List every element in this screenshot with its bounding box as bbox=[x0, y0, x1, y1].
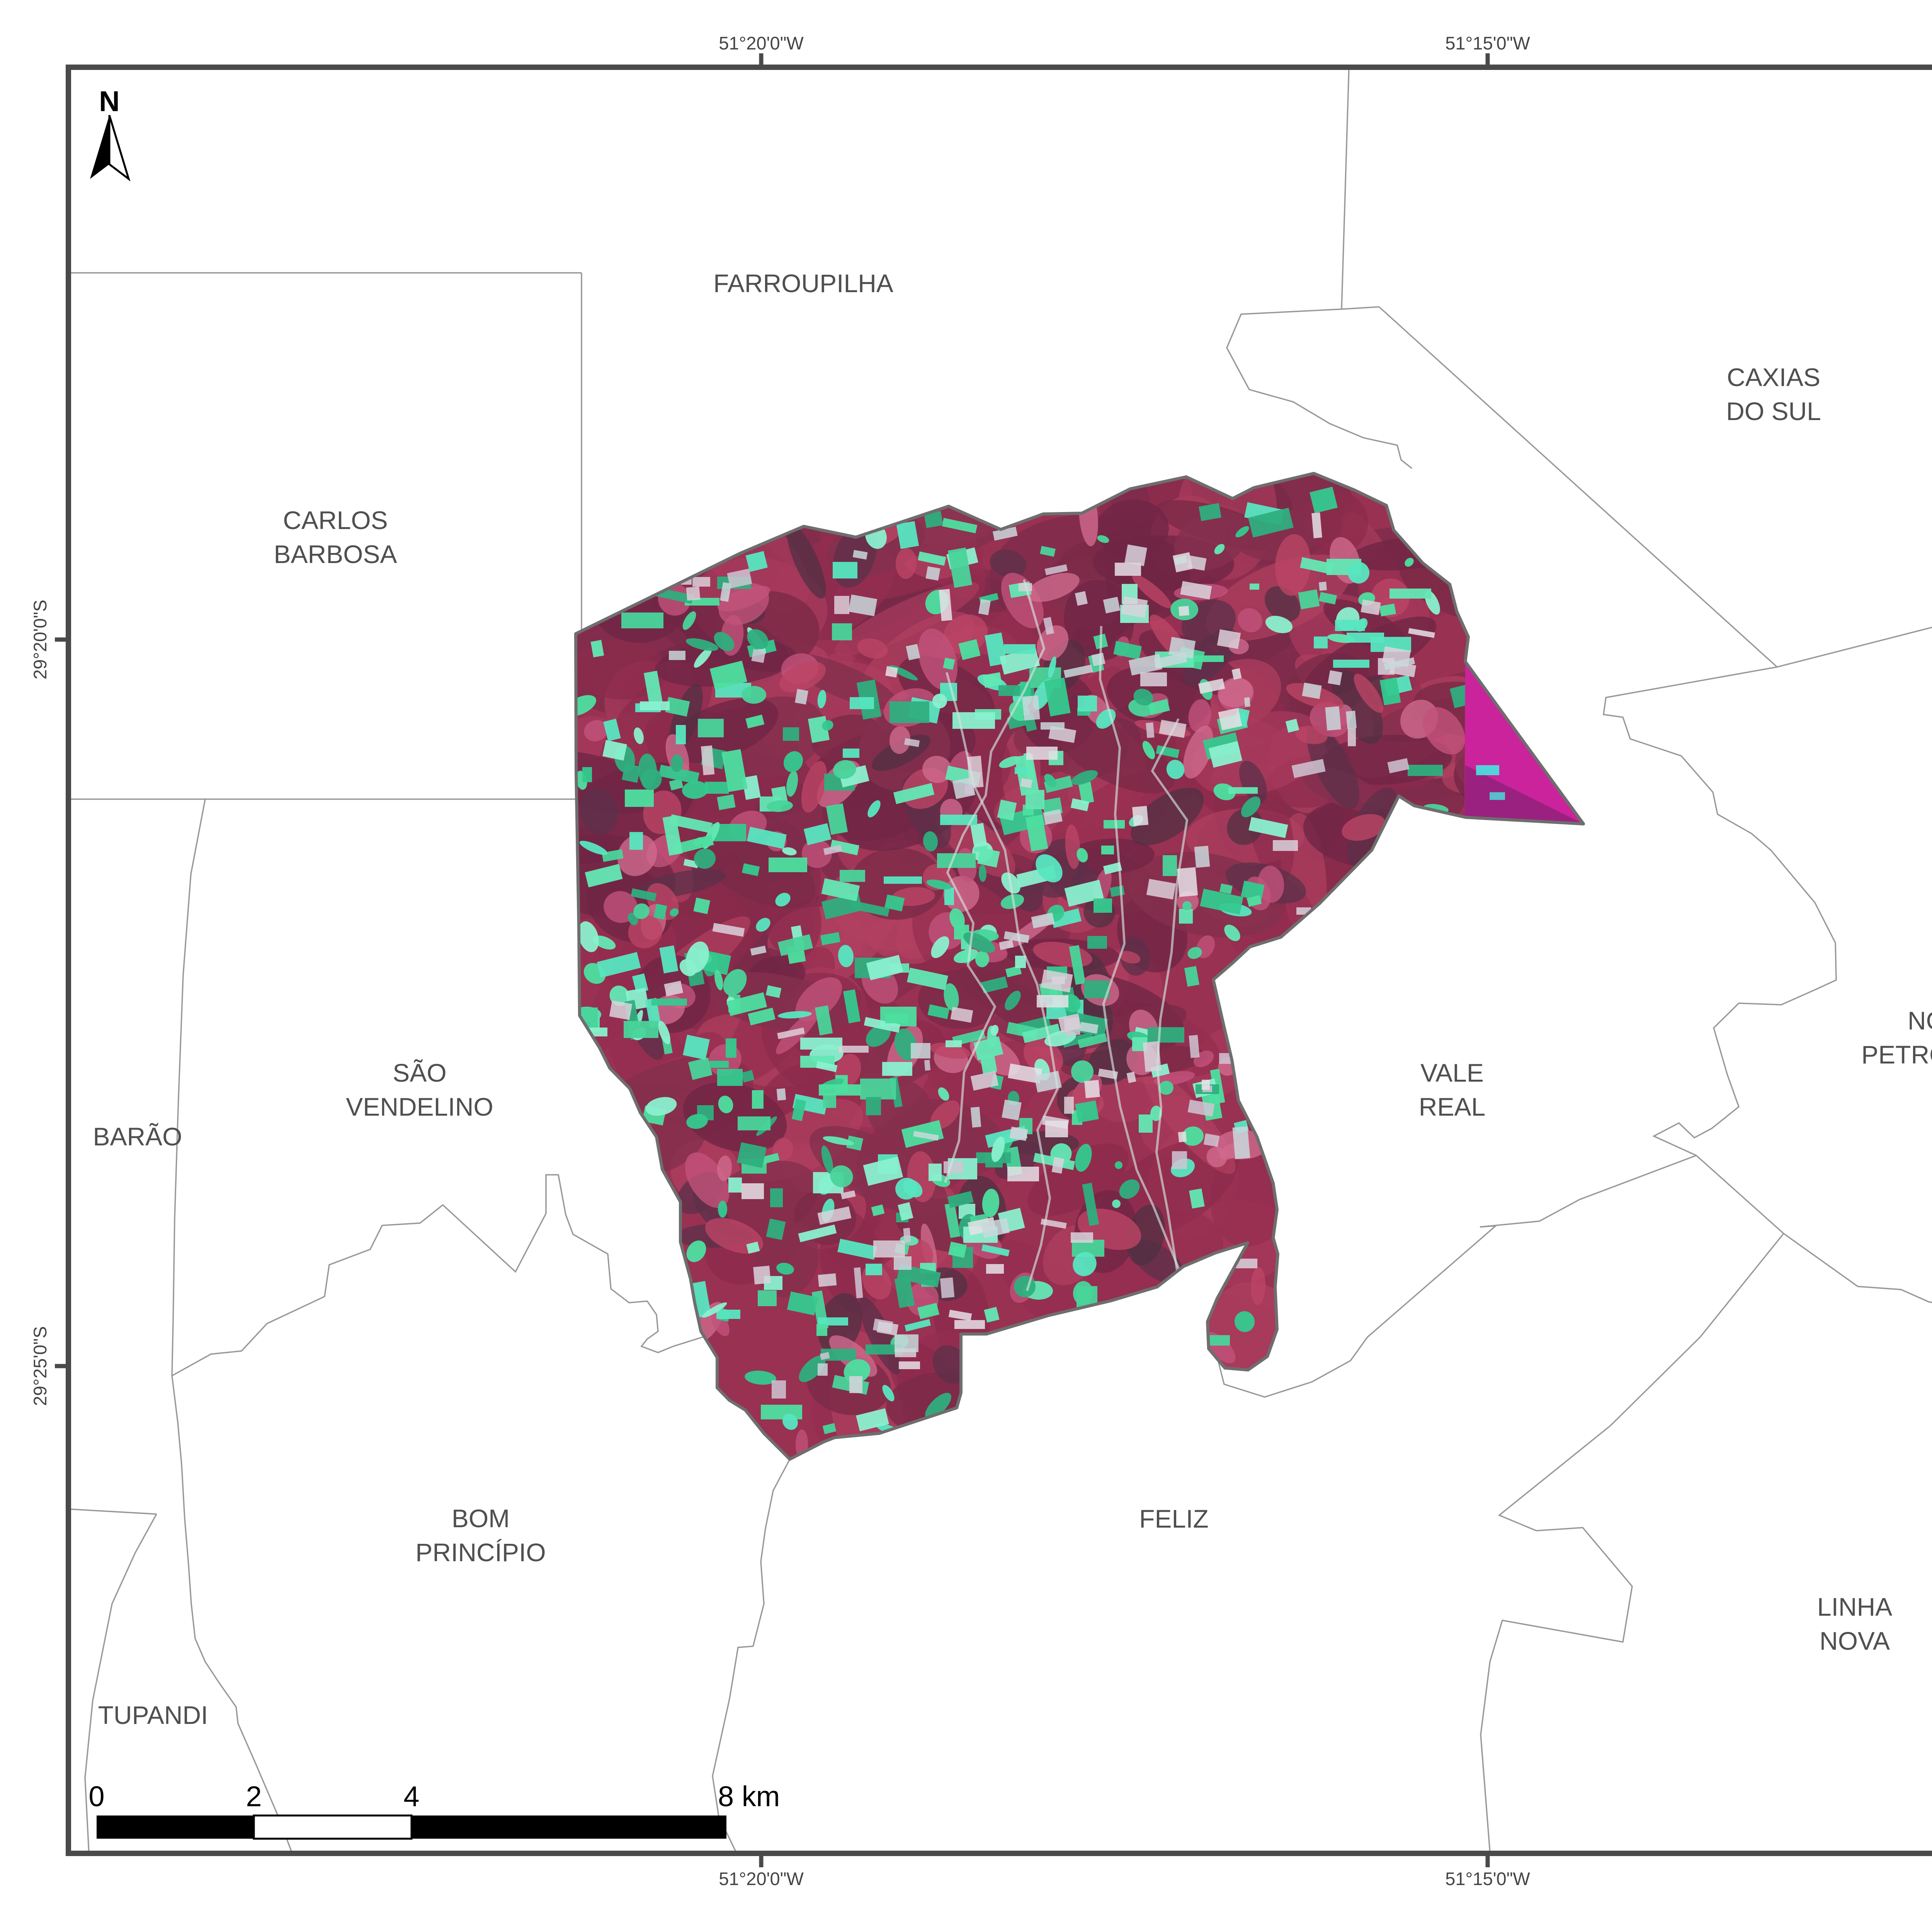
svg-text:29°20'0"S: 29°20'0"S bbox=[30, 600, 50, 680]
svg-text:N: N bbox=[99, 85, 119, 117]
svg-text:PRINCÍPIO: PRINCÍPIO bbox=[415, 1538, 546, 1567]
svg-text:VALE: VALE bbox=[1420, 1058, 1484, 1087]
svg-text:CAXIAS: CAXIAS bbox=[1727, 363, 1820, 391]
svg-text:NOVA: NOVA bbox=[1820, 1627, 1890, 1655]
svg-text:VENDELINO: VENDELINO bbox=[346, 1092, 493, 1121]
svg-text:LINHA: LINHA bbox=[1817, 1593, 1892, 1621]
svg-text:51°15'0"W: 51°15'0"W bbox=[1445, 1868, 1530, 1889]
svg-text:CARLOS: CARLOS bbox=[283, 506, 388, 534]
svg-text:51°15'0"W: 51°15'0"W bbox=[1445, 33, 1530, 53]
svg-text:BOM: BOM bbox=[452, 1504, 510, 1533]
svg-text:BARBOSA: BARBOSA bbox=[274, 540, 397, 568]
svg-text:DO SUL: DO SUL bbox=[1726, 397, 1821, 425]
svg-text:51°20'0"W: 51°20'0"W bbox=[719, 1868, 804, 1889]
svg-text:4: 4 bbox=[403, 1780, 419, 1812]
svg-text:FELIZ: FELIZ bbox=[1139, 1504, 1209, 1533]
svg-text:2: 2 bbox=[246, 1780, 262, 1812]
svg-text:SÃO: SÃO bbox=[393, 1058, 446, 1087]
svg-text:FARROUPILHA: FARROUPILHA bbox=[713, 269, 893, 298]
svg-text:8 km: 8 km bbox=[718, 1780, 780, 1812]
svg-text:TUPANDI: TUPANDI bbox=[98, 1701, 208, 1729]
svg-text:0: 0 bbox=[88, 1780, 104, 1812]
svg-text:NOVA: NOVA bbox=[1908, 1006, 1932, 1035]
svg-text:51°20'0"W: 51°20'0"W bbox=[719, 33, 804, 53]
svg-text:29°25'0"S: 29°25'0"S bbox=[30, 1326, 50, 1406]
svg-text:REAL: REAL bbox=[1419, 1092, 1485, 1121]
svg-text:PETRÓPOLIS: PETRÓPOLIS bbox=[1861, 1040, 1932, 1069]
svg-text:BARÃO: BARÃO bbox=[93, 1122, 182, 1151]
